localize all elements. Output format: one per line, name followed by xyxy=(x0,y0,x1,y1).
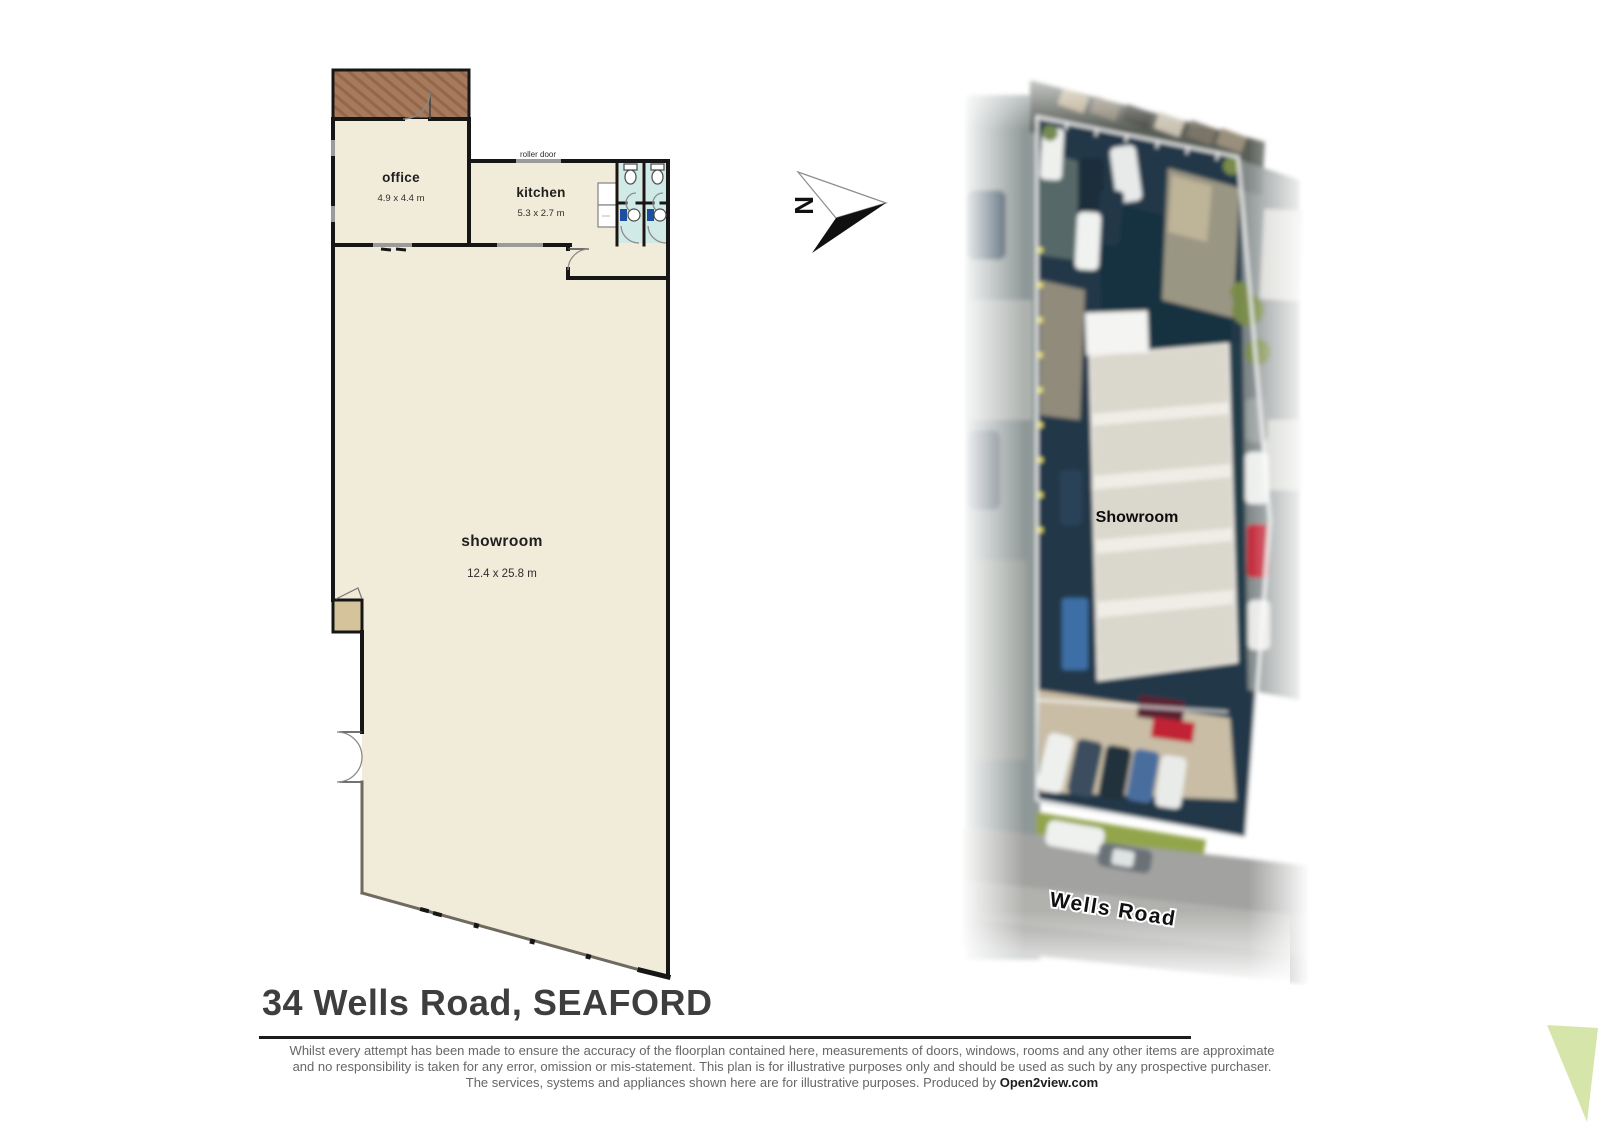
entry-alcove xyxy=(333,600,362,632)
disclaimer-line-2: and no responsibility is taken for any e… xyxy=(182,1059,1382,1075)
kitchen-counter xyxy=(598,183,617,227)
showroom-label: showroom xyxy=(461,533,543,550)
disclaimer-line-3: The services, systems and appliances sho… xyxy=(182,1075,1382,1091)
deck-area xyxy=(333,70,469,119)
office-label: office xyxy=(382,170,420,185)
double-door xyxy=(337,732,362,782)
brand-name: Open2view.com xyxy=(1000,1075,1099,1090)
aerial-showroom-label: Showroom xyxy=(1096,509,1179,526)
page-title: 34 Wells Road, SEAFORD xyxy=(262,982,712,1024)
north-letter: N xyxy=(789,196,819,215)
aerial-photo: Showroom Wells Road xyxy=(960,55,1310,985)
floorplan-page: { "floorplan": { "office_label": "office… xyxy=(0,0,1600,1131)
showroom-room xyxy=(333,245,668,977)
roller-door-label: roller door xyxy=(520,150,556,159)
showroom-dims: 12.4 x 25.8 m xyxy=(467,568,537,580)
kitchen-label: kitchen xyxy=(516,185,565,200)
title-divider xyxy=(259,1036,1191,1039)
disclaimer: Whilst every attempt has been made to en… xyxy=(182,1043,1382,1091)
north-arrow-icon: N xyxy=(775,150,900,265)
office-dims: 4.9 x 4.4 m xyxy=(378,193,425,204)
disclaimer-line-1: Whilst every attempt has been made to en… xyxy=(182,1043,1382,1059)
floorplan-drawing: roller door xyxy=(280,50,700,995)
kitchen-dims: 5.3 x 2.7 m xyxy=(518,208,565,219)
corner-accent xyxy=(1535,1015,1600,1131)
toilet-block xyxy=(617,161,666,245)
small-building-roof xyxy=(1085,311,1148,355)
